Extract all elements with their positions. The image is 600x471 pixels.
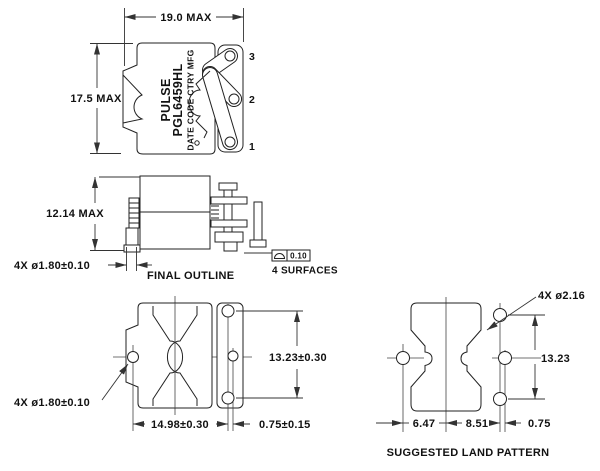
- final-outline-label: FINAL OUTLINE: [147, 270, 234, 282]
- bottom-view: 13.23±0.30 4X ø1.80±0.10 14.98±0.30 0.75…: [14, 296, 327, 431]
- pin1-circle: [225, 137, 235, 147]
- engineering-drawing: PULSE PGL6459HL DATE CODE CTRY MFG 3 2 1…: [0, 0, 600, 471]
- top-view: PULSE PGL6459HL DATE CODE CTRY MFG 3 2 1…: [70, 8, 255, 154]
- pin-span-dim-label: 13.23±0.30: [269, 352, 327, 364]
- top-width-dim-label: 19.0 MAX: [160, 12, 212, 24]
- left-lead-coil: [124, 198, 140, 252]
- pin-label-3: 3: [249, 51, 255, 63]
- right-terminals: [211, 183, 266, 251]
- bottom-view-body-outline: [126, 303, 212, 408]
- profile-tolerance-value: 0.10: [290, 252, 307, 261]
- pad-span-dimension: 13.23: [508, 315, 570, 399]
- drawing-canvas: PULSE PGL6459HL DATE CODE CTRY MFG 3 2 1…: [0, 0, 600, 471]
- top-height-dim-label: 17.5 MAX: [70, 93, 122, 105]
- bottom-lead-dia-label: 4X ø1.80±0.10: [14, 397, 90, 409]
- tab-lead-circle: [128, 352, 139, 363]
- pad-dia-label: 4X ø2.16: [538, 290, 585, 302]
- marking-note-text: DATE CODE CTRY MFG: [186, 49, 196, 150]
- land-pad-mid-right: [499, 352, 512, 365]
- bottom-pin-span-dimension: 13.23±0.30: [269, 311, 327, 398]
- land-dim-row: 6.47 8.51 0.75: [376, 418, 551, 430]
- land-pattern-caption: SUGGESTED LAND PATTERN: [387, 447, 550, 459]
- pitch-left-dim-label: 6.47: [413, 418, 436, 430]
- bottom-pin2-circle: [228, 351, 238, 361]
- surfaces-note-label: 4 SURFACES: [272, 266, 338, 277]
- pin-label-1: 1: [249, 141, 255, 153]
- bottom-dim-row: 14.98±0.30 0.75±0.15: [133, 419, 311, 431]
- bottom-lead-dimension: 4X ø1.80±0.10: [14, 364, 128, 409]
- land-pattern: 4X ø2.16 13.23 6.47 8.51 0.75 SUGGESTED …: [376, 290, 585, 459]
- side-view: 12.14 MAX 4X ø1.80±0.10 FINAL OUTLINE 0.…: [14, 176, 338, 282]
- land-pad-bottom-right: [494, 393, 507, 406]
- side-height-dim-label: 12.14 MAX: [46, 208, 104, 220]
- bottom-pin3-circle: [222, 305, 234, 317]
- pitch-right-dim-label: 8.51: [466, 418, 489, 430]
- profile-tolerance-frame: 0.10: [244, 250, 310, 261]
- lead-dia-label-side: 4X ø1.80±0.10: [14, 260, 90, 272]
- bottom-pin1-circle: [222, 392, 234, 404]
- pin2-circle: [229, 94, 239, 104]
- pin-offset-dim-label: 0.75±0.15: [259, 419, 311, 431]
- pad-span-dim-label: 13.23: [541, 353, 570, 365]
- left-foot-stem: [126, 228, 138, 245]
- pin-label-2: 2: [249, 94, 255, 106]
- pad-offset-dim-label: 0.75: [528, 418, 551, 430]
- land-pad-left: [397, 352, 410, 365]
- land-pad-top-right: [494, 309, 507, 322]
- part-number-text: PGL6459HL: [171, 64, 185, 137]
- pin-pitch-dim-label: 14.98±0.30: [151, 419, 209, 431]
- pin3-circle: [225, 51, 235, 61]
